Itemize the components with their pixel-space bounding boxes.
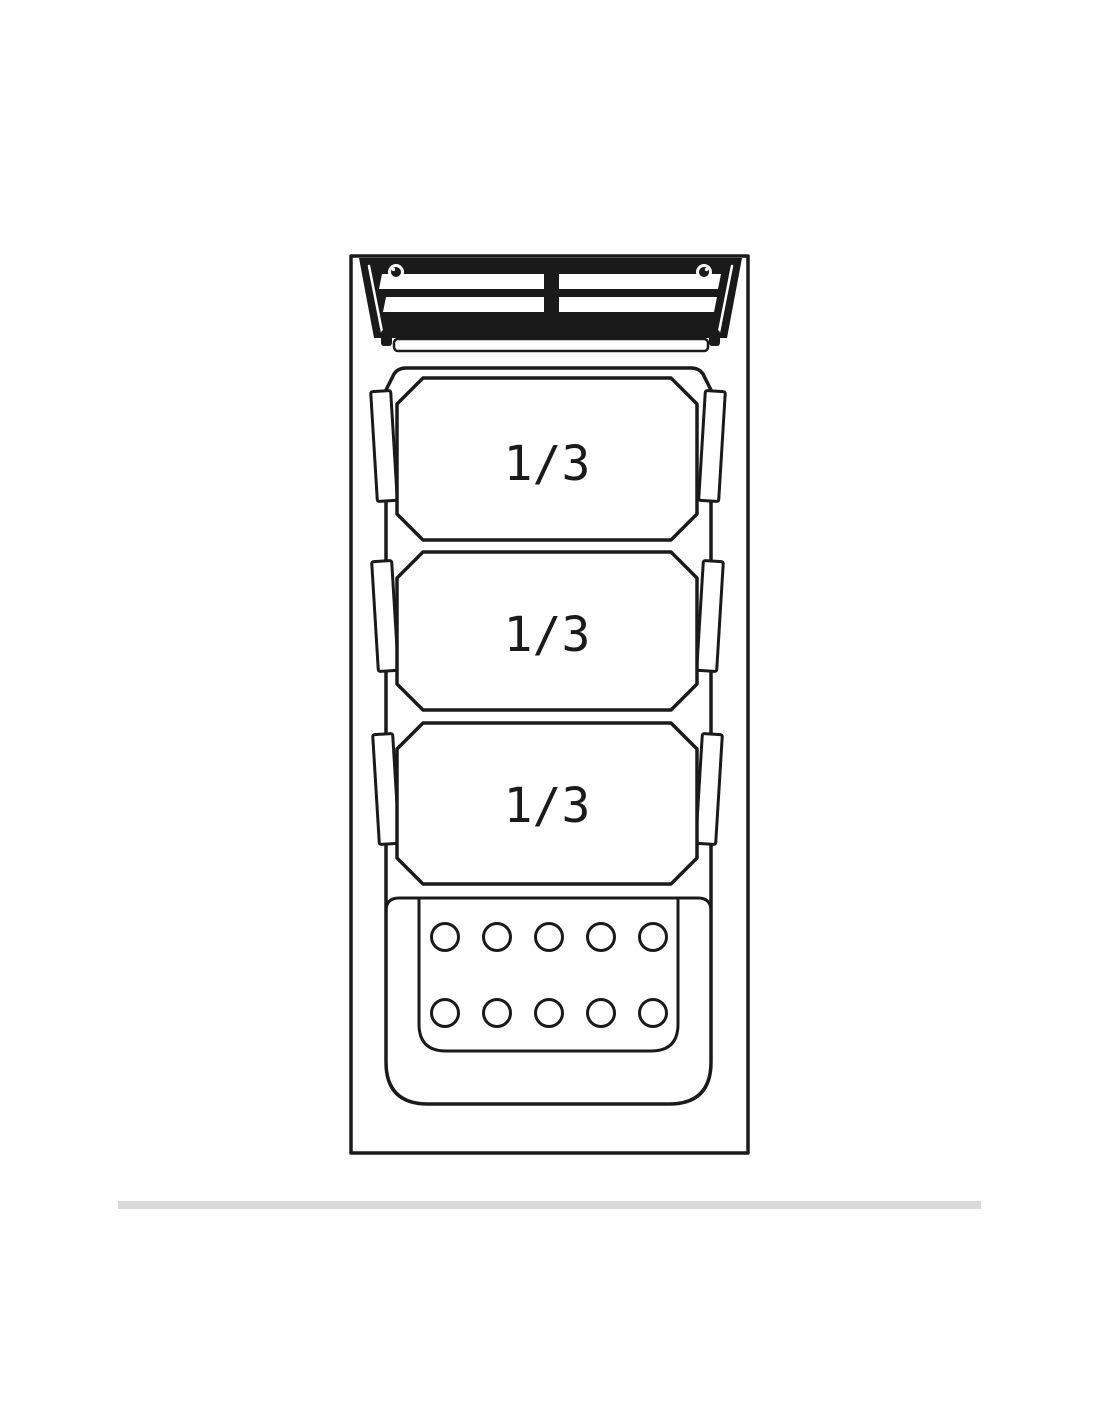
page: 1/3 1/3 1/3	[0, 0, 1100, 1422]
perforation-hole	[588, 1000, 615, 1027]
grille-slot	[383, 297, 544, 312]
well-divider	[386, 898, 711, 911]
pan-handle	[697, 560, 724, 671]
screw-icon	[696, 264, 712, 280]
perforated-plate	[419, 899, 678, 1051]
perforation-hole	[640, 1000, 667, 1027]
perforation-hole	[432, 924, 459, 951]
perforation-hole	[588, 924, 615, 951]
perforation-hole	[536, 1000, 563, 1027]
pan-handle	[696, 733, 723, 844]
pan-handle	[699, 390, 726, 501]
pan-size-label: 1/3	[504, 436, 591, 492]
pan-size-label: 1/3	[504, 607, 591, 663]
perforation-holes	[432, 924, 667, 1027]
perforation-hole	[536, 924, 563, 951]
pan-handle	[371, 390, 398, 501]
pan-size-label: 1/3	[504, 778, 591, 834]
unit-top-view-drawing: 1/3 1/3 1/3	[0, 0, 1100, 1422]
screw-icon	[388, 264, 404, 280]
perforation-hole	[432, 1000, 459, 1027]
grille-foot	[381, 330, 392, 346]
grille-foot	[709, 330, 720, 346]
gn-pan: 1/3	[397, 723, 697, 884]
ventilation-grille	[359, 258, 742, 351]
gn-pan: 1/3	[397, 378, 697, 540]
grille-slot	[559, 297, 717, 312]
footer-divider-rule	[118, 1201, 981, 1209]
gn-pan: 1/3	[397, 552, 697, 710]
perforation-hole	[484, 924, 511, 951]
perforation-hole	[484, 1000, 511, 1027]
pan-handle	[372, 560, 399, 671]
grille-slot	[559, 274, 721, 289]
grille-flange	[394, 339, 708, 351]
grille-slot	[379, 274, 544, 289]
perforation-hole	[640, 924, 667, 951]
